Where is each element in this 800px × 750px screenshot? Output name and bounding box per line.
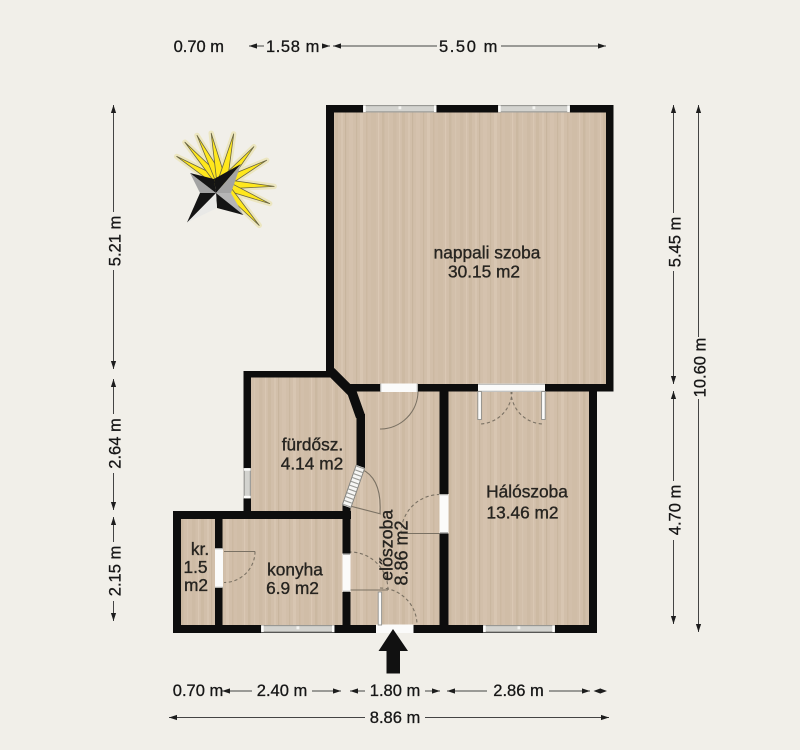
svg-text:5.45 m: 5.45 m bbox=[667, 217, 685, 267]
svg-text:nappali szoba: nappali szoba bbox=[434, 243, 541, 263]
svg-text:2.64 m: 2.64 m bbox=[107, 418, 125, 468]
svg-text:5.21 m: 5.21 m bbox=[107, 216, 125, 266]
svg-text:6.9 m2: 6.9 m2 bbox=[266, 578, 319, 598]
svg-text:2.86 m: 2.86 m bbox=[493, 682, 543, 700]
svg-text:8.86 m: 8.86 m bbox=[370, 709, 420, 727]
svg-text:Hálószoba: Hálószoba bbox=[486, 482, 568, 502]
svg-text:m2: m2 bbox=[184, 575, 208, 595]
svg-text:10.60 m: 10.60 m bbox=[692, 338, 710, 398]
svg-text:konyha: konyha bbox=[267, 560, 323, 580]
svg-text:0.70 m: 0.70 m bbox=[173, 682, 223, 700]
svg-text:1.80 m: 1.80 m bbox=[370, 682, 420, 700]
svg-text:1.5: 1.5 bbox=[183, 557, 207, 577]
svg-text:4.70 m: 4.70 m bbox=[667, 485, 685, 535]
svg-text:5.50 m: 5.50 m bbox=[439, 38, 499, 56]
svg-text:kr.: kr. bbox=[191, 539, 209, 559]
svg-text:0.70 m: 0.70 m bbox=[174, 38, 224, 56]
svg-text:2.40 m: 2.40 m bbox=[257, 682, 307, 700]
svg-text:30.15 m2: 30.15 m2 bbox=[448, 262, 520, 282]
svg-text:1.58 m: 1.58 m bbox=[266, 38, 320, 56]
svg-text:4.14 m2: 4.14 m2 bbox=[281, 454, 343, 474]
svg-text:2.15 m: 2.15 m bbox=[107, 546, 125, 596]
svg-text:8.86 m2: 8.86 m2 bbox=[392, 520, 412, 585]
svg-text:13.46 m2: 13.46 m2 bbox=[486, 503, 558, 523]
svg-text:fürdősz.: fürdősz. bbox=[282, 435, 343, 455]
